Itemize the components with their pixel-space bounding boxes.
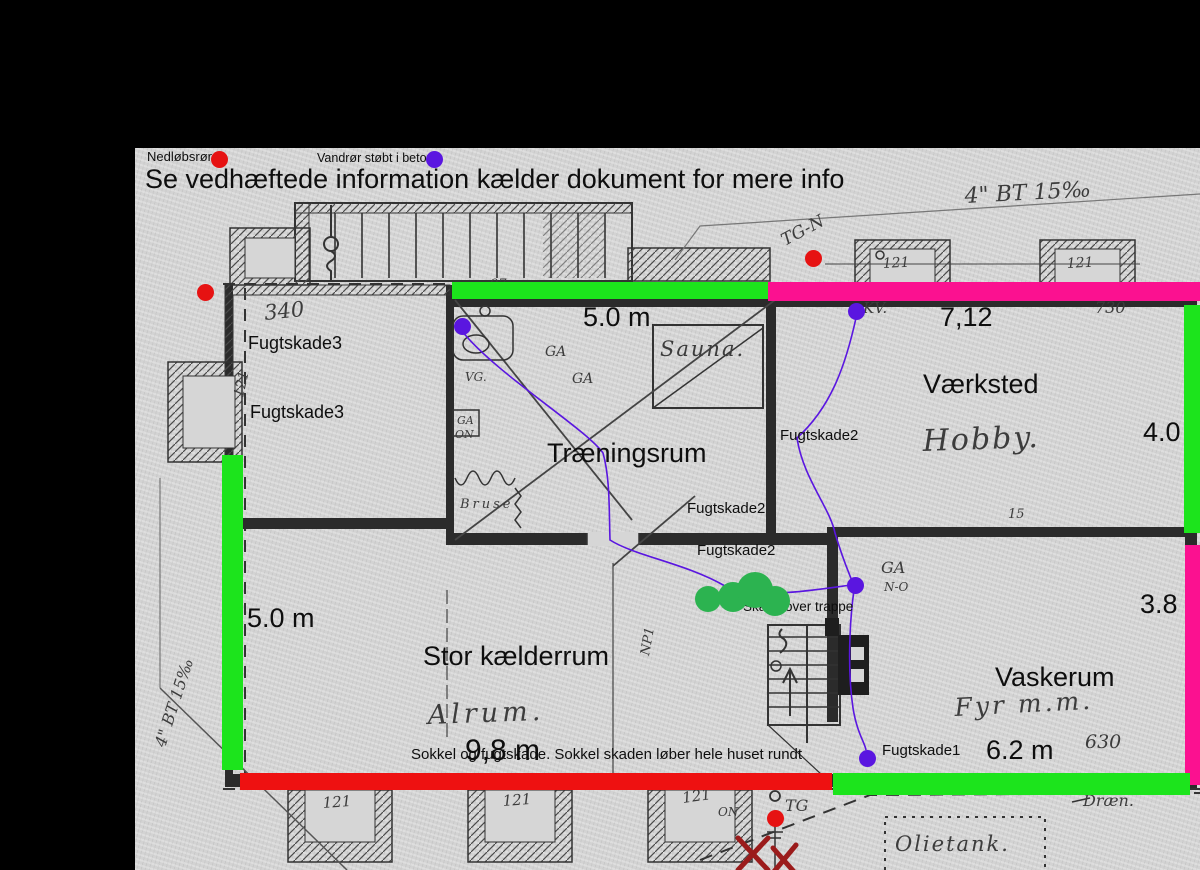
nedlobsror-dot-tg [767,810,784,827]
legend-purple-dot [426,151,443,168]
note-340: 340 [263,297,305,325]
note-on-1: ON [455,428,474,441]
note-bruse: Bruse [459,497,514,512]
marker-bar-green-top [452,282,768,299]
nw-top-wall-hatch [225,285,450,295]
nedlobsror-dot-tgn [805,250,822,267]
door-opening [587,532,639,546]
damage-blob-3 [760,586,790,616]
exterior-stairs [295,203,632,281]
damage-label-fugtskade1: Fugtskade1 [882,743,960,760]
tg-symbol-icon [770,791,780,801]
note-121-d: 121 [502,790,532,810]
note-bt-left: 4" BT 15‰ [150,656,197,750]
damage-blob-4 [695,586,721,612]
note-hobby: Hobby. [921,420,1040,459]
vandror-dot-ga [847,577,864,594]
note-121-b: 121 [1066,255,1094,272]
room-label-stor-kaelderrum: Stor kælderrum [423,642,609,672]
marker-bar-green-left [222,455,243,770]
screenshot-canvas: 4" BT 15‰ 4" BT 15‰ TG-N 121 121 121 121… [0,0,1200,870]
note-on-2: ON [718,805,739,819]
note-vg: VG. [465,370,487,384]
nedlobsror-dot-nw [197,284,214,301]
legend-red-dot [211,151,228,168]
marker-bar-magenta-top [768,282,1200,301]
window-well-left [168,362,242,462]
room-label-vaerksted: Værksted [923,370,1039,400]
note-alrum: Alrum. [424,696,545,731]
note-sauna: Sauna. [660,337,745,361]
measurement-vaskerum-width: 6.2 m [986,736,1054,766]
floorplan-scan: 4" BT 15‰ 4" BT 15‰ TG-N 121 121 121 121… [135,148,1200,870]
vent-symbol-icon [324,237,338,251]
damage-label-fugtskade2-a: Fugtskade2 [780,428,858,445]
marker-bar-green-right [1184,305,1200,533]
vandror-dot-fugtskade1 [859,750,876,767]
note-121-a: 121 [882,255,910,272]
note-olietank: Olietank. [895,832,1010,856]
measurement-left: 5.0 m [247,604,315,634]
note-630: 630 [1085,731,1121,753]
room-label-traeningsrum: Træningsrum [547,439,707,469]
marker-bar-magenta-right [1185,545,1200,785]
room-label-vaskerum: Vaskerum [995,663,1115,693]
page-title: Se vedhæftede information kælder dokumen… [145,165,844,195]
measurement-right-lower: 3.8 [1140,590,1178,620]
damage-label-fugtskade2-b: Fugtskade2 [687,501,765,518]
note-bt-top: 4" BT 15‰ [963,177,1092,209]
note-ga-1: GA [545,344,566,360]
note-np: NP1 [638,626,658,658]
measurement-top: 5.0 m [583,303,651,333]
note-n-o: N-O [883,580,909,594]
note-tg: TG [785,796,809,815]
note-ga-2: GA [572,371,593,387]
note-121-c: 121 [322,792,352,812]
vandror-dot-kv [848,303,865,320]
note-15: 15 [1008,507,1025,522]
marker-bar-red-bottom [240,773,832,790]
note-kv: KV. [862,299,887,317]
note-ga-3: GA [457,414,474,427]
measurement-right-upper: 4.0 [1143,418,1181,448]
measurement-bottom: 9,8 m [465,734,540,767]
damage-label-fugtskade3-b: Fugtskade3 [250,403,344,423]
vandror-dot-wc [454,318,471,335]
note-ga-4: GA [881,558,905,577]
marker-bar-green-bottom [833,773,1190,795]
damage-label-fugtskade2-c: Fugtskade2 [697,543,775,560]
stair-landing [628,248,770,281]
legend-label-nedlobsror: Nedløbsrør [147,150,212,164]
note-tg-n: TG-N [778,211,829,251]
damage-label-fugtskade3-a: Fugtskade3 [248,334,342,354]
measurement-vaerksted-width: 7,12 [940,303,993,333]
